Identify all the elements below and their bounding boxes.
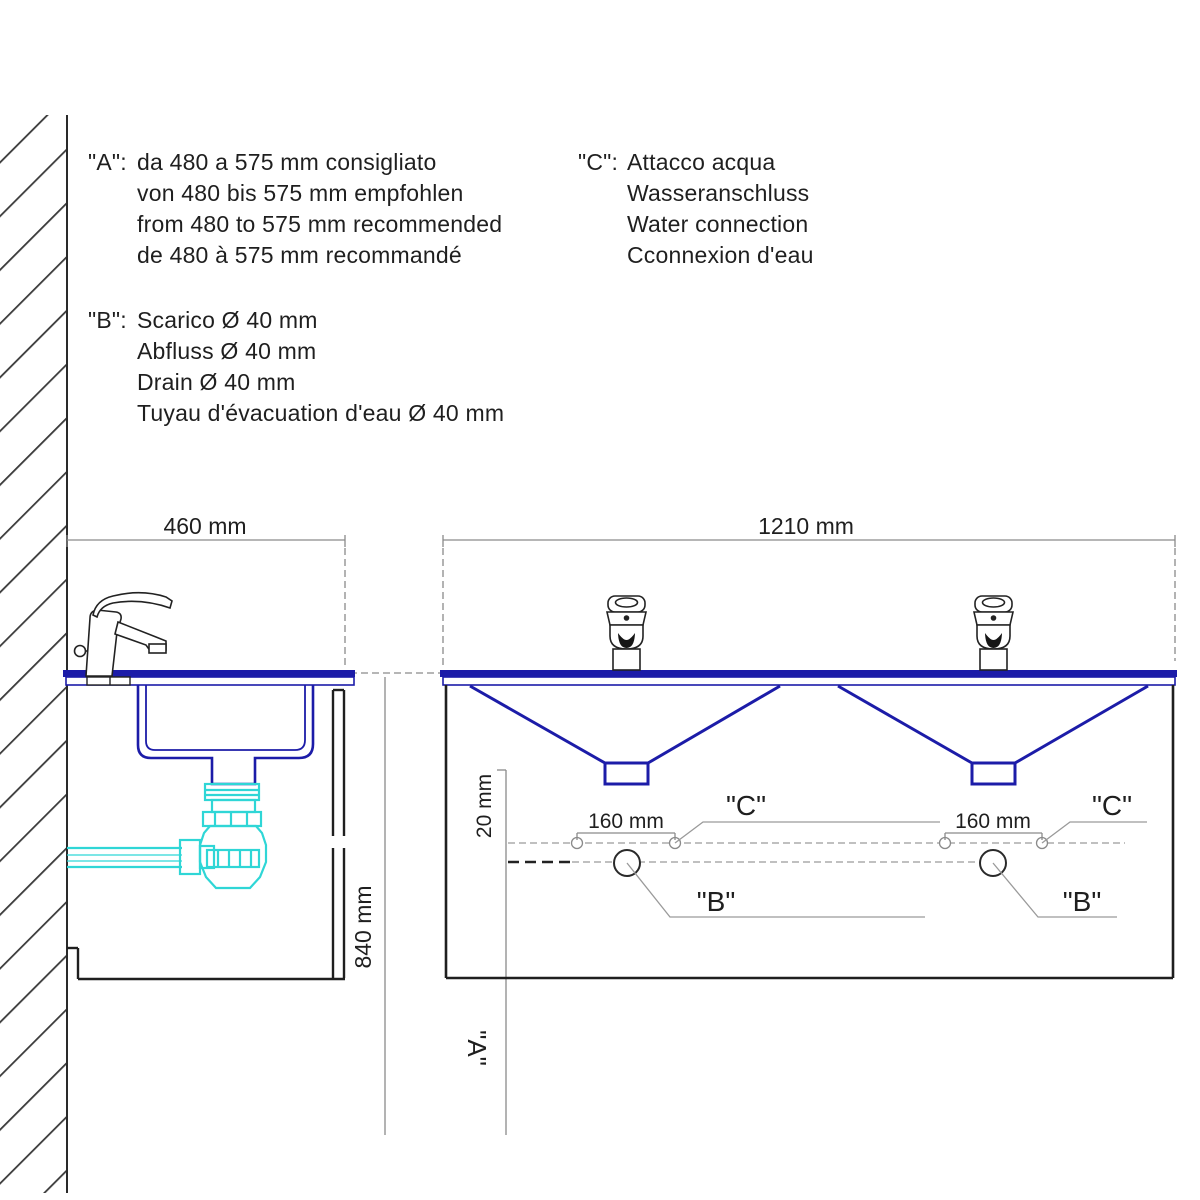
technical-drawing: 460 mm 1210 mm 840 mm 20 mm 160 mm 160 m… [0, 0, 1200, 1200]
left-basin [470, 686, 605, 763]
ref-b-left: "B" [697, 886, 736, 917]
dim-160-right: 160 mm [955, 810, 1031, 833]
note-b-line: Drain Ø 40 mm [137, 367, 504, 398]
side-sink-bowl [138, 685, 313, 784]
leader-c-right [1042, 822, 1147, 843]
connection-lines [508, 843, 1125, 862]
note-b-line: Scarico Ø 40 mm [137, 305, 504, 336]
right-basin [838, 686, 972, 763]
note-c-key: "C": [578, 147, 627, 271]
note-a-line: da 480 a 575 mm consigliato [137, 147, 502, 178]
note-a-line: von 480 bis 575 mm empfohlen [137, 178, 502, 209]
leader-c-left [675, 822, 940, 843]
note-c-line: Water connection [627, 209, 814, 240]
dim-20: 20 mm [473, 774, 496, 838]
note-c-line: Attacco acqua [627, 147, 814, 178]
note-b-line: Tuyau d'évacuation d'eau Ø 40 mm [137, 398, 504, 429]
basin-outlines [470, 686, 1148, 784]
front-countertop [440, 670, 1177, 677]
left-front-faucet [607, 596, 646, 670]
note-c-line: Cconnexion d'eau [627, 240, 814, 271]
front-view [440, 596, 1177, 978]
wall-hatching [0, 115, 66, 1193]
note-a: "A": da 480 a 575 mm consigliato von 480… [88, 147, 502, 271]
dim-1210: 1210 mm [758, 513, 854, 539]
note-a-line: de 480 à 575 mm recommandé [137, 240, 502, 271]
ref-c-right: "C" [1092, 790, 1132, 821]
note-b-line: Abfluss Ø 40 mm [137, 336, 504, 367]
side-cabinet [67, 690, 345, 979]
note-a-line: from 480 to 575 mm recommended [137, 209, 502, 240]
note-c: "C": Attacco acqua Wasseranschluss Water… [578, 147, 814, 271]
note-c-line: Wasseranschluss [627, 178, 814, 209]
side-view [63, 593, 355, 979]
dim-160-left: 160 mm [588, 810, 664, 833]
leader-b-left [627, 863, 925, 917]
trap-bottle [200, 826, 266, 888]
dim-840: 840 mm [350, 885, 376, 968]
right-front-faucet [974, 596, 1013, 670]
note-b-key: "B": [88, 305, 137, 429]
note-a-key: "A": [88, 147, 137, 271]
note-b: "B": Scarico Ø 40 mm Abfluss Ø 40 mm Dra… [88, 305, 504, 429]
side-faucet [75, 593, 173, 676]
ref-a: "A" [462, 1030, 492, 1066]
front-cabinet [446, 685, 1173, 978]
ref-c-left: "C" [726, 790, 766, 821]
dim-460: 460 mm [163, 513, 246, 539]
siphon-trap [67, 784, 266, 888]
wall-section [0, 115, 67, 1193]
tap-spacing-dimensions [577, 833, 1042, 840]
ref-b-right: "B" [1063, 886, 1102, 917]
